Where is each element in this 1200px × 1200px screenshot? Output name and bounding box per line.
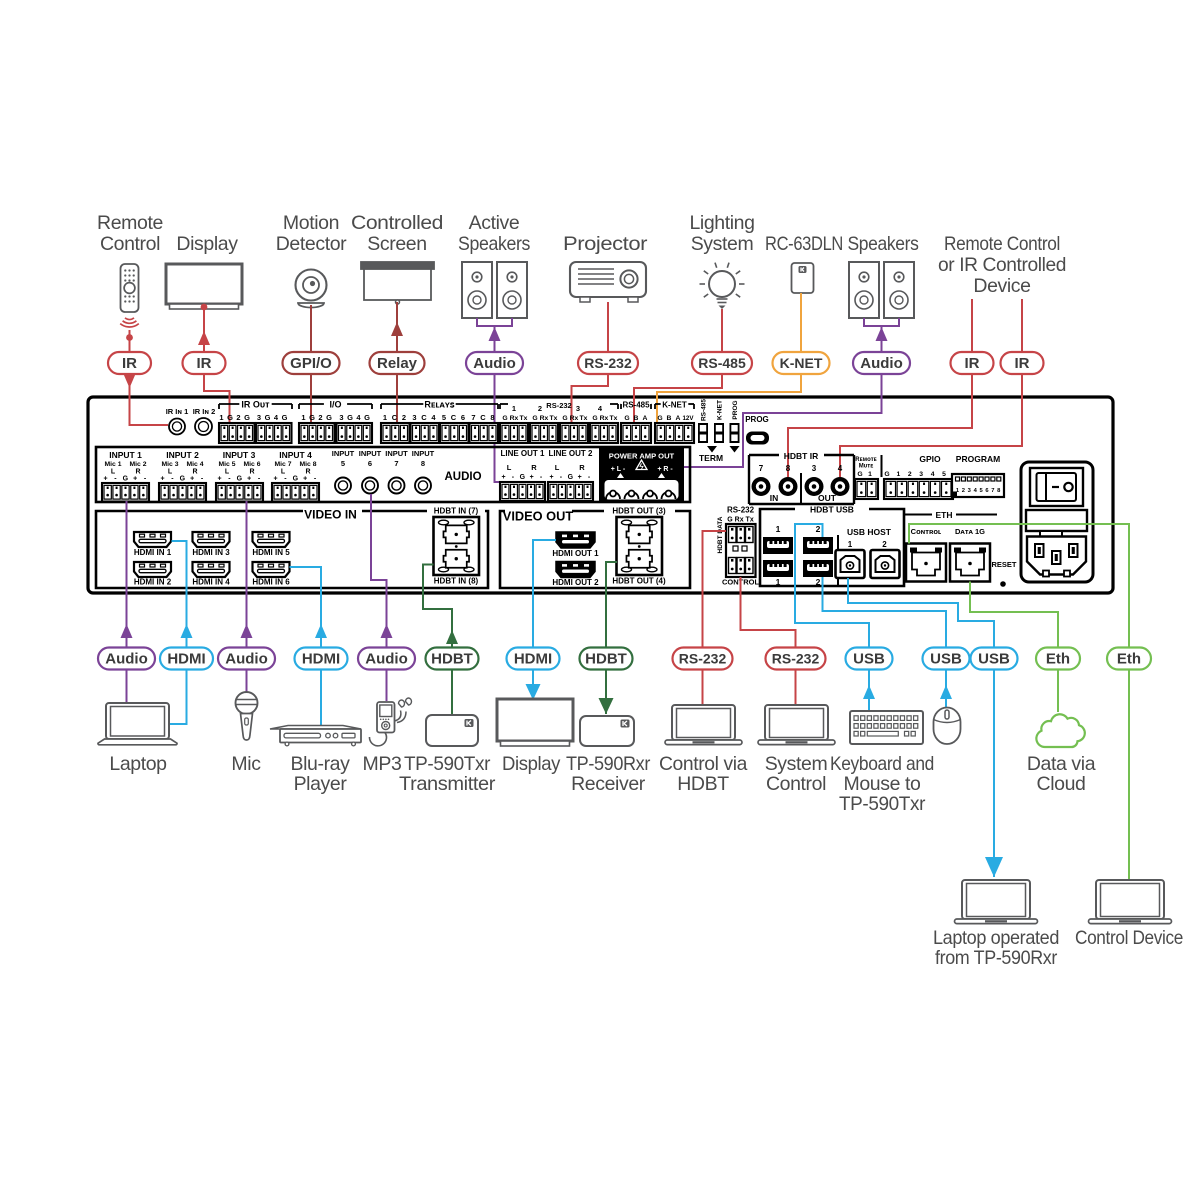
svg-text:or IR Controlled: or IR Controlled [938, 254, 1066, 276]
svg-text:G: G [347, 413, 353, 422]
svg-text:IR Iɴ 1: IR Iɴ 1 [166, 407, 189, 416]
svg-text:Audio: Audio [473, 355, 516, 372]
svg-text:Cloud: Cloud [1037, 773, 1086, 795]
svg-text:Mic 7: Mic 7 [275, 461, 292, 468]
svg-text:+: + [578, 474, 582, 481]
svg-text:12V: 12V [682, 415, 694, 422]
svg-text:G: G [857, 471, 862, 478]
svg-text:Display: Display [176, 233, 238, 255]
svg-text:GPIO: GPIO [919, 454, 941, 464]
svg-text:K-NET: K-NET [780, 355, 823, 371]
svg-text:USB HOST: USB HOST [847, 527, 892, 537]
svg-text:L: L [111, 469, 116, 476]
svg-text:Tx: Tx [520, 415, 528, 422]
svg-text:HDMI OUT 2: HDMI OUT 2 [552, 578, 599, 587]
svg-text:L: L [168, 469, 173, 476]
svg-text:RS-232: RS-232 [546, 401, 571, 410]
svg-text:Cᴏɴᴛʀᴏʟ: Cᴏɴᴛʀᴏʟ [911, 527, 942, 536]
svg-text:R: R [135, 469, 140, 476]
svg-text:Eth: Eth [1046, 651, 1070, 668]
svg-text:TP-590Txr: TP-590Txr [404, 753, 491, 775]
svg-text:+: + [247, 476, 251, 483]
svg-text:Relay: Relay [377, 355, 418, 372]
svg-text:G: G [592, 415, 597, 422]
svg-text:TP-590Rxr: TP-590Rxr [566, 753, 651, 775]
svg-text:Audio: Audio [365, 651, 408, 668]
svg-text:PROG: PROG [745, 415, 769, 424]
svg-text:Mic 3: Mic 3 [162, 461, 179, 468]
svg-text:System: System [691, 233, 754, 255]
svg-text:4: 4 [931, 471, 935, 478]
svg-text:1: 1 [776, 524, 781, 534]
svg-text:Mic: Mic [231, 753, 261, 775]
svg-text:Remote: Remote [97, 212, 163, 234]
svg-text:Control: Control [766, 773, 826, 795]
svg-text:G: G [532, 415, 537, 422]
svg-text:INPUT: INPUT [332, 449, 355, 458]
svg-text:IR: IR [965, 355, 980, 372]
svg-text:HDMI OUT 1: HDMI OUT 1 [552, 549, 599, 558]
svg-text:C: C [421, 413, 427, 422]
svg-text:1: 1 [301, 413, 305, 422]
svg-text:RS-485: RS-485 [698, 355, 746, 371]
svg-text:+: + [501, 474, 505, 481]
svg-text:8: 8 [421, 459, 425, 468]
svg-text:AUDIO: AUDIO [444, 471, 481, 483]
svg-text:+: + [190, 476, 194, 483]
svg-text:G: G [237, 476, 243, 483]
svg-text:ETH: ETH [936, 510, 953, 520]
svg-text:RS-232: RS-232 [679, 651, 727, 667]
svg-text:Mic 4: Mic 4 [187, 461, 204, 468]
svg-text:K-NET: K-NET [662, 401, 687, 410]
svg-text:+: + [160, 476, 164, 483]
svg-text:R: R [192, 469, 197, 476]
svg-text:Mic 5: Mic 5 [219, 461, 236, 468]
svg-text:HDBT DATA: HDBT DATA [717, 516, 724, 553]
svg-text:Dᴀᴛᴀ 1G: Dᴀᴛᴀ 1G [955, 527, 985, 536]
svg-text:HDMI: HDMI [167, 651, 205, 668]
svg-text:I/O: I/O [329, 400, 341, 410]
svg-text:Control Device: Control Device [1075, 927, 1183, 949]
svg-text:Player: Player [294, 773, 348, 795]
svg-text:VIDEO IN: VIDEO IN [304, 508, 357, 522]
svg-text:R: R [531, 463, 537, 472]
svg-text:HDBT IN (7): HDBT IN (7) [434, 507, 479, 516]
svg-text:Control via: Control via [659, 753, 748, 775]
svg-text:MP3: MP3 [363, 753, 402, 775]
svg-text:Speakers: Speakers [848, 233, 920, 255]
svg-text:4: 4 [838, 464, 843, 473]
svg-text:G: G [227, 413, 233, 422]
svg-text:RESET: RESET [991, 560, 1016, 569]
svg-text:INPUT 4: INPUT 4 [279, 450, 312, 460]
svg-text:Active: Active [469, 212, 520, 234]
svg-text:2: 2 [402, 413, 406, 422]
svg-text:Audio: Audio [860, 355, 903, 372]
svg-text:G: G [293, 476, 299, 483]
svg-text:Motion: Motion [283, 212, 339, 234]
svg-text:Tx: Tx [580, 415, 588, 422]
svg-text:2: 2 [538, 404, 542, 413]
svg-text:OUT: OUT [818, 493, 837, 503]
svg-text:INPUT 2: INPUT 2 [166, 450, 199, 460]
svg-text:+: + [217, 476, 221, 483]
svg-text:7: 7 [394, 459, 398, 468]
svg-text:5: 5 [341, 459, 345, 468]
svg-text:G: G [244, 413, 250, 422]
svg-text:2: 2 [236, 413, 240, 422]
svg-text:K-NET: K-NET [717, 400, 724, 420]
svg-text:3: 3 [257, 413, 261, 422]
svg-text:+ R -: + R - [657, 466, 673, 473]
svg-text:IN: IN [770, 493, 779, 503]
svg-text:+: + [273, 476, 277, 483]
svg-text:1: 1 [383, 413, 387, 422]
svg-text:A: A [676, 415, 681, 422]
svg-text:Audio: Audio [225, 651, 268, 668]
svg-text:from TP-590Rxr: from TP-590Rxr [935, 947, 1058, 969]
svg-text:G: G [657, 415, 662, 422]
svg-text:Projector: Projector [563, 233, 648, 255]
svg-text:Laptop operated: Laptop operated [933, 927, 1059, 949]
svg-text:2: 2 [962, 488, 965, 494]
svg-text:GPI/O: GPI/O [290, 355, 332, 372]
svg-text:R: R [305, 469, 310, 476]
svg-text:L: L [507, 463, 512, 472]
svg-text:G: G [502, 415, 507, 422]
svg-text:R: R [579, 463, 585, 472]
svg-text:Mouse to: Mouse to [843, 773, 921, 795]
svg-text:INPUT: INPUT [385, 449, 408, 458]
svg-text:G: G [364, 413, 370, 422]
svg-text:RS-485: RS-485 [701, 399, 708, 421]
svg-text:LINE OUT 1: LINE OUT 1 [500, 449, 545, 458]
svg-text:HDBT OUT (3): HDBT OUT (3) [612, 507, 666, 516]
svg-text:Tx: Tx [610, 415, 618, 422]
svg-text:2: 2 [318, 413, 322, 422]
svg-text:1: 1 [219, 413, 223, 422]
svg-text:2: 2 [908, 471, 912, 478]
svg-text:TP-590Txr: TP-590Txr [839, 793, 926, 815]
svg-text:INPUT: INPUT [359, 449, 382, 458]
svg-text:5: 5 [442, 413, 446, 422]
svg-text:2: 2 [882, 540, 887, 549]
svg-text:Laptop: Laptop [109, 753, 167, 775]
svg-text:Rx: Rx [510, 415, 519, 422]
svg-text:Tx: Tx [550, 415, 558, 422]
svg-text:PROGRAM: PROGRAM [956, 454, 1000, 464]
svg-text:C: C [392, 413, 398, 422]
svg-text:Transmitter: Transmitter [399, 773, 496, 795]
svg-text:6: 6 [368, 459, 372, 468]
svg-text:HDMI: HDMI [302, 651, 340, 668]
svg-text:RC-63DLN: RC-63DLN [765, 233, 843, 255]
svg-text:INPUT 3: INPUT 3 [223, 450, 256, 460]
svg-text:Receiver: Receiver [571, 773, 646, 795]
svg-text:3: 3 [919, 471, 923, 478]
svg-text:Speakers: Speakers [458, 233, 531, 255]
svg-text:IR: IR [1015, 355, 1030, 372]
svg-text:B: B [634, 415, 639, 422]
svg-text:G: G [282, 413, 288, 422]
svg-text:Screen: Screen [367, 233, 426, 255]
svg-text:HDMI IN 6: HDMI IN 6 [252, 578, 290, 587]
svg-text:G: G [520, 474, 526, 481]
svg-text:IR Oᴜᴛ: IR Oᴜᴛ [241, 400, 270, 410]
svg-text:RS-485: RS-485 [622, 401, 650, 410]
svg-text:G: G [624, 415, 629, 422]
svg-text:Rx: Rx [570, 415, 579, 422]
svg-text:2: 2 [816, 524, 821, 534]
svg-text:1: 1 [512, 404, 516, 413]
svg-text:RS-232: RS-232 [584, 355, 632, 371]
svg-text:HDBT USB: HDBT USB [810, 505, 854, 515]
svg-text:1: 1 [848, 540, 853, 549]
svg-text:USB: USB [853, 651, 885, 668]
svg-text:A: A [643, 415, 648, 422]
svg-text:INPUT: INPUT [412, 449, 435, 458]
svg-text:Detector: Detector [276, 233, 347, 255]
svg-text:HDMI IN 2: HDMI IN 2 [134, 578, 172, 587]
svg-text:+: + [133, 476, 137, 483]
svg-text:HDBT: HDBT [677, 773, 729, 795]
svg-text:B: B [667, 415, 672, 422]
svg-text:3: 3 [576, 404, 580, 413]
svg-text:USB: USB [978, 651, 1010, 668]
svg-text:Control: Control [100, 233, 160, 255]
svg-text:RS-232: RS-232 [772, 651, 820, 667]
svg-text:HDBT IR: HDBT IR [784, 451, 818, 461]
svg-text:TERM: TERM [699, 453, 723, 463]
svg-text:1: 1 [776, 577, 781, 587]
svg-text:G: G [326, 413, 332, 422]
svg-text:G: G [884, 471, 889, 478]
svg-text:Lighting: Lighting [689, 212, 754, 234]
svg-text:HDBT: HDBT [585, 651, 627, 668]
svg-text:USB: USB [930, 651, 962, 668]
svg-text:G: G [180, 476, 186, 483]
svg-text:IR: IR [122, 355, 137, 372]
svg-text:G Rx Tx: G Rx Tx [727, 517, 754, 524]
svg-text:HDBT IN (8): HDBT IN (8) [434, 577, 479, 586]
svg-text:Mic 8: Mic 8 [300, 461, 317, 468]
svg-text:+: + [303, 476, 307, 483]
svg-text:G: G [562, 415, 567, 422]
svg-text:+: + [530, 474, 534, 481]
svg-text:System: System [765, 753, 828, 775]
svg-text:L: L [281, 469, 286, 476]
svg-text:Remote Control: Remote Control [944, 233, 1060, 255]
svg-text:HDMI IN 4: HDMI IN 4 [192, 578, 230, 587]
svg-text:1: 1 [897, 471, 901, 478]
svg-text:C: C [480, 413, 486, 422]
svg-text:G: G [309, 413, 315, 422]
svg-text:PROG: PROG [732, 400, 739, 419]
svg-text:L: L [555, 463, 560, 472]
svg-text:IR Iɴ 2: IR Iɴ 2 [193, 407, 216, 416]
svg-text:3: 3 [339, 413, 343, 422]
svg-text:HDBT: HDBT [431, 651, 473, 668]
svg-text:8: 8 [786, 464, 791, 473]
svg-text:Rᴇᴍᴏᴛᴇ: Rᴇᴍᴏᴛᴇ [855, 457, 876, 463]
svg-text:Rx: Rx [540, 415, 549, 422]
svg-text:Mic 6: Mic 6 [244, 461, 261, 468]
svg-text:5: 5 [942, 471, 946, 478]
svg-text:HDBT OUT (4): HDBT OUT (4) [612, 577, 666, 586]
svg-text:Controlled: Controlled [351, 212, 443, 234]
svg-text:Audio: Audio [105, 651, 148, 668]
svg-text:+: + [549, 474, 553, 481]
svg-text:RS-232: RS-232 [727, 506, 755, 515]
svg-text:Eth: Eth [1117, 651, 1141, 668]
svg-text:7: 7 [471, 413, 475, 422]
svg-text:Blu-ray: Blu-ray [291, 753, 351, 775]
svg-text:L: L [225, 469, 230, 476]
svg-text:Mᴜᴛᴇ: Mᴜᴛᴇ [859, 464, 873, 470]
svg-text:Device: Device [973, 275, 1030, 297]
svg-text:+ L -: + L - [611, 466, 626, 473]
svg-text:C: C [451, 413, 457, 422]
svg-text:G: G [123, 476, 129, 483]
svg-text:HDMI: HDMI [514, 651, 552, 668]
svg-text:Mic 1: Mic 1 [105, 461, 122, 468]
svg-text:Mic 2: Mic 2 [130, 461, 147, 468]
svg-text:HDMI IN 1: HDMI IN 1 [134, 548, 172, 557]
svg-text:HDMI IN 3: HDMI IN 3 [192, 548, 230, 557]
svg-text:6: 6 [461, 413, 465, 422]
svg-text:IR: IR [197, 355, 212, 372]
svg-text:7: 7 [991, 488, 994, 494]
svg-text:VIDEO OUT: VIDEO OUT [503, 509, 574, 524]
svg-text:G: G [265, 413, 271, 422]
svg-text:3: 3 [412, 413, 416, 422]
svg-text:Rx: Rx [600, 415, 609, 422]
svg-text:3: 3 [812, 464, 817, 473]
svg-text:7: 7 [759, 464, 764, 473]
svg-text:Display: Display [502, 753, 561, 775]
svg-text:8: 8 [490, 413, 494, 422]
svg-text:Data via: Data via [1027, 753, 1096, 775]
svg-text:+: + [103, 476, 107, 483]
svg-text:Rᴇʟᴀʏꜱ: Rᴇʟᴀʏꜱ [424, 400, 455, 410]
svg-text:HDMI IN 5: HDMI IN 5 [252, 548, 290, 557]
svg-text:1: 1 [868, 471, 872, 478]
svg-text:INPUT 1: INPUT 1 [109, 450, 142, 460]
svg-text:R: R [249, 469, 254, 476]
svg-text:2: 2 [816, 577, 821, 587]
svg-text:Keyboard and: Keyboard and [830, 753, 934, 775]
svg-text:LINE OUT 2: LINE OUT 2 [548, 449, 593, 458]
svg-text:G: G [568, 474, 574, 481]
